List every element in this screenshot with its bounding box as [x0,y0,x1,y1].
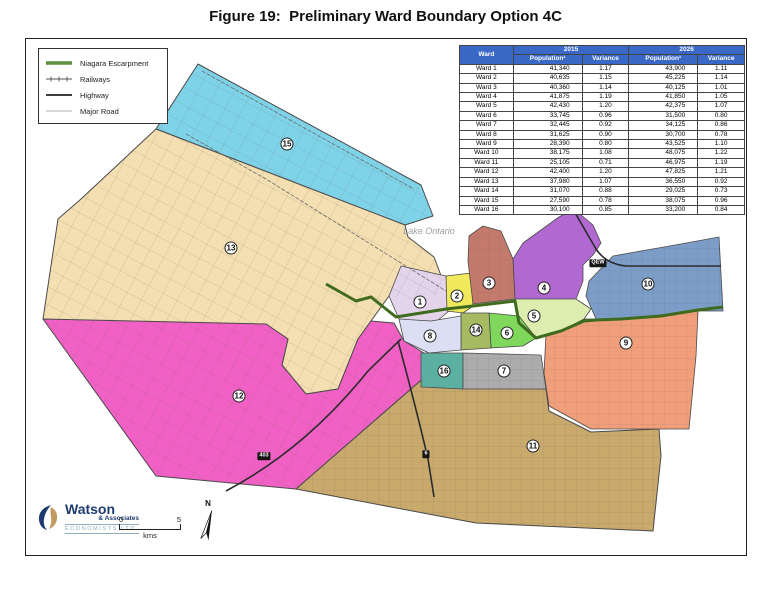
major-road-line-icon [45,107,73,115]
legend-item-railways: Railways [45,71,161,87]
ward-2-badge: 2 [451,290,464,303]
ward-9-badge: 9 [620,337,633,350]
ward-10-badge: 10 [642,278,655,291]
table-row: Ward 732,4450.9234,1250.86 [460,121,745,130]
north-label: N [196,499,220,508]
escarpment-line-icon [45,59,73,67]
table-row: Ward 633,7450.9631,5000.80 [460,111,745,120]
table-row: Ward 441,8751.1941,8501.05 [460,93,745,102]
col-header-variance-2026: Variance [698,55,745,64]
map-legend: Niagara Escarpment Railways Highway Majo… [38,48,168,124]
legend-label: Major Road [80,107,119,116]
table-row: Ward 1038,1751.0848,0751.22 [460,149,745,158]
col-header-2026: 2026 [629,46,745,55]
ward-15-badge: 15 [281,138,294,151]
col-header-ward: Ward [460,46,514,65]
ward-table-body: Ward 141,3401.1743,9001.11Ward 240,6351.… [460,64,745,215]
ward-population-table: Ward 2015 2026 Population¹ Variance Popu… [459,45,745,215]
legend-item-highway: Highway [45,87,161,103]
watson-logo-swoosh-icon [36,503,62,533]
col-header-variance-2015: Variance [582,55,629,64]
table-row: Ward 1242,4001.2047,8251.21 [460,168,745,177]
scale-bar-line [119,524,181,530]
north-arrow: N [196,499,220,549]
railway-line-icon [45,75,73,83]
legend-label: Railways [80,75,110,84]
ward-13-badge: 13 [225,242,238,255]
scale-unit: kms [119,531,181,540]
highway-line-icon [45,91,73,99]
map-frame: Niagara Escarpment Railways Highway Majo… [25,38,747,556]
table-row: Ward 1431,0700.8829,0250.73 [460,187,745,196]
ward-7-badge: 7 [498,365,511,378]
ward-12-badge: 12 [233,390,246,403]
north-arrow-icon [196,508,220,544]
highway-badge-403: 403 [257,452,270,460]
ward-1-badge: 1 [414,296,427,309]
ward-8-badge: 8 [424,330,437,343]
table-row: Ward 1630,1000.8533,2000.84 [460,205,745,214]
col-header-population-2026: Population¹ [629,55,698,64]
highway-badge-6: 6 [422,450,429,458]
legend-label: Highway [80,91,109,100]
legend-item-major-road: Major Road [45,103,161,119]
table-row: Ward 340,3601.1440,1251.01 [460,83,745,92]
ward-3-badge: 3 [483,277,496,290]
scale-bar: 0 5 kms [119,515,181,540]
highway-badge-qew: QEW [589,259,606,267]
table-row: Ward 542,4301.2042,3751.07 [460,102,745,111]
ward-6-badge: 6 [501,327,514,340]
scale-end: 5 [177,515,181,524]
logo-name: Watson [65,503,139,515]
ward-5-badge: 5 [528,310,541,323]
ward-4-badge: 4 [538,282,551,295]
lake-ontario-label: Lake Ontario [403,226,455,236]
legend-label: Niagara Escarpment [80,59,148,68]
col-header-2015: 2015 [513,46,629,55]
ward-11-badge: 11 [527,440,540,453]
ward-16-badge: 16 [438,365,451,378]
table-row: Ward 1125,1050.7146,9751.19 [460,158,745,167]
table-row: Ward 928,3900.8043,5251.10 [460,140,745,149]
table-header: Ward 2015 2026 Population¹ Variance Popu… [460,46,745,65]
table-row: Ward 1527,5900.7838,0750.96 [460,196,745,205]
table-row: Ward 1337,9801.0736,5500.92 [460,177,745,186]
table-row: Ward 141,3401.1743,9001.11 [460,64,745,73]
scale-start: 0 [119,515,123,524]
legend-item-escarpment: Niagara Escarpment [45,55,161,71]
table-row: Ward 831,6250.9030,7000.78 [460,130,745,139]
table-row: Ward 240,6351.1545,2251.14 [460,74,745,83]
figure-title: Figure 19: Preliminary Ward Boundary Opt… [0,8,771,25]
ward-14-badge: 14 [470,324,483,337]
col-header-population-2015: Population¹ [513,55,582,64]
